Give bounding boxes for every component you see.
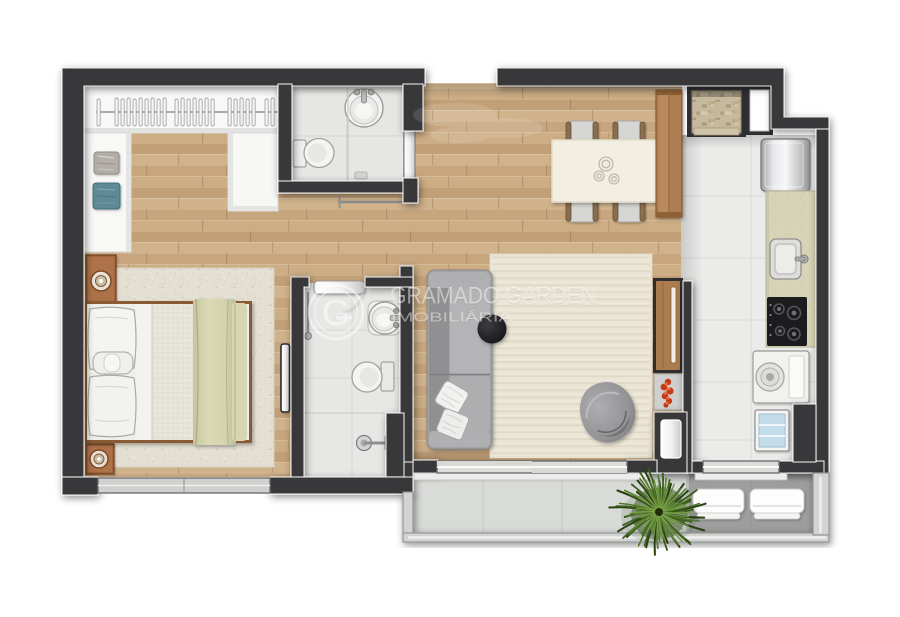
svg-text:GRAMADO GARDEN: GRAMADO GARDEN: [390, 283, 596, 310]
svg-text:IMOBILIÁRIA: IMOBILIÁRIA: [391, 310, 512, 325]
svg-text:G: G: [322, 292, 350, 333]
